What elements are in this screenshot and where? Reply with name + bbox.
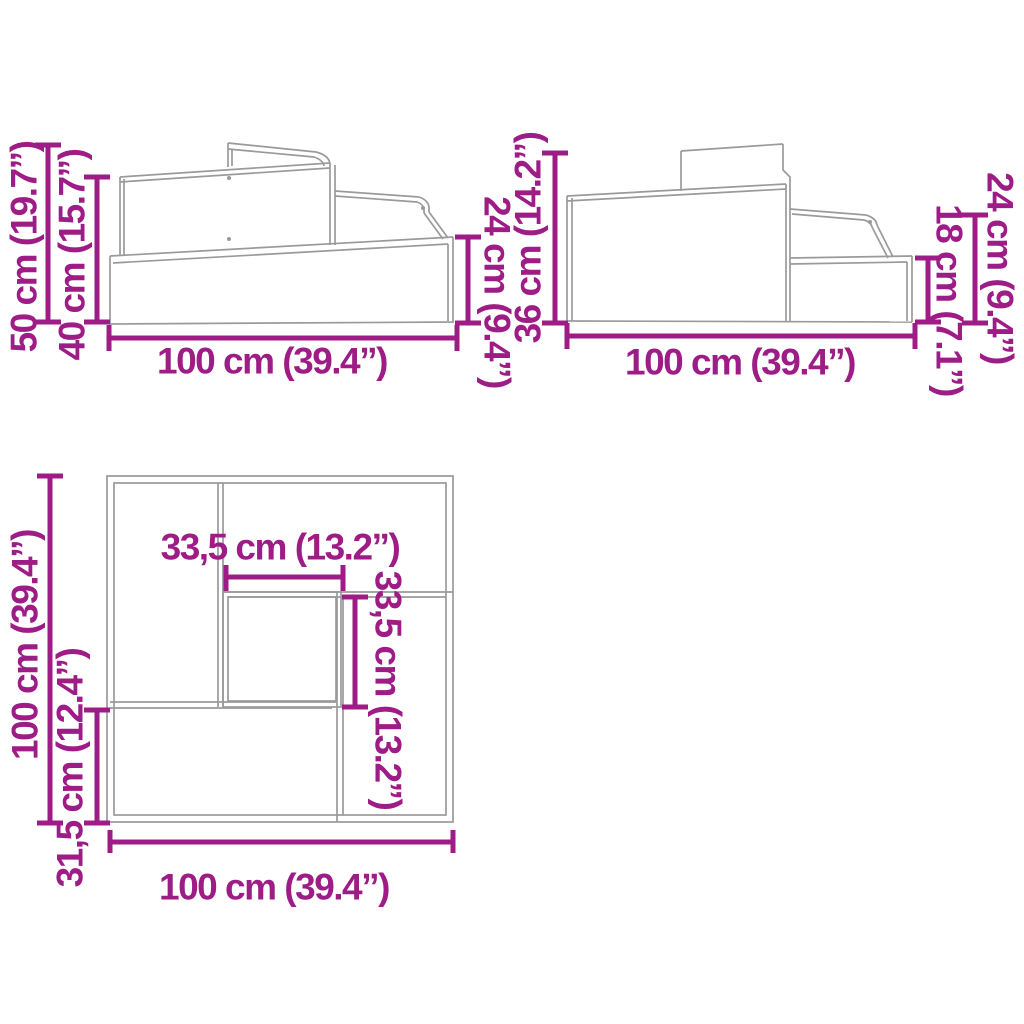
dim-label-b-right-height: 24 cm (9.4”) — [982, 172, 1019, 364]
dim-label-a-wall-height: 40 cm (15.7”) — [54, 150, 91, 361]
dim-label-a-overall-height: 50 cm (19.7”) — [6, 142, 43, 353]
dim-line-c-inner-width — [226, 565, 343, 591]
dim-label-c-side-length: 100 cm (39.4”) — [7, 530, 44, 760]
dimension-diagram: 50 cm (19.7”) 40 cm (15.7”) 100 cm (39.4… — [0, 0, 1024, 1024]
side-view-right-drawing — [567, 144, 912, 322]
dim-label-b-step-height: 18 cm (7.1”) — [931, 204, 968, 396]
dim-label-c-bottom-width: 100 cm (39.4”) — [159, 869, 389, 906]
dim-line-c-inner-depth — [342, 597, 368, 707]
side-view-left-drawing — [110, 143, 453, 324]
dim-label-a-width: 100 cm (39.4”) — [157, 343, 387, 380]
dim-label-b-left-height: 36 cm (14.2”) — [510, 133, 547, 344]
dim-label-c-lower-depth: 31,5 cm (12.4”) — [52, 649, 89, 888]
dim-label-c-inner-width: 33,5 cm (13.2”) — [161, 529, 400, 566]
dim-label-b-width: 100 cm (39.4”) — [625, 344, 855, 381]
dim-line-c-bottom-width — [110, 830, 453, 853]
dim-label-c-inner-depth: 33,5 cm (13.2”) — [370, 571, 407, 810]
